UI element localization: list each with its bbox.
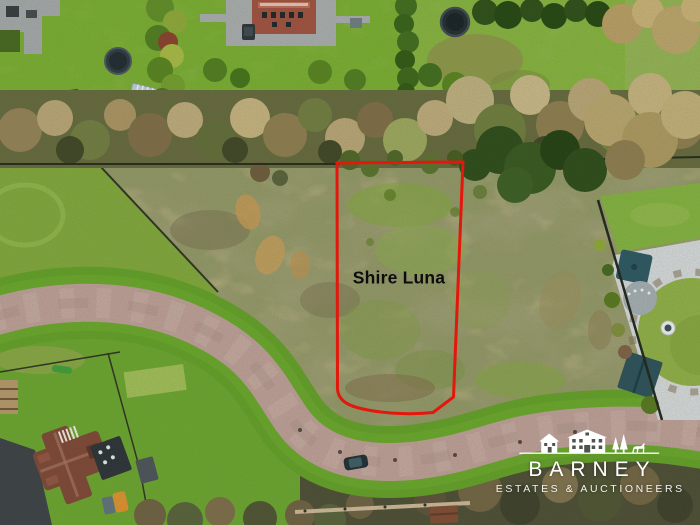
aerial-photo-canvas: Shire Luna: [0, 0, 700, 525]
ground-line: [519, 453, 659, 454]
pine-trees-icon: [612, 434, 628, 453]
barn-icon: [567, 430, 607, 453]
agency-watermark: BARNEY ESTATES & AUCTIONEERS: [493, 428, 685, 495]
agency-name: BARNEY: [521, 459, 656, 480]
agency-logo-icon: [519, 428, 659, 457]
parcel-name-label: Shire Luna: [353, 268, 445, 289]
agency-tagline: ESTATES & AUCTIONEERS: [493, 484, 685, 495]
horse-icon: [632, 443, 645, 452]
house-icon: [539, 434, 559, 453]
